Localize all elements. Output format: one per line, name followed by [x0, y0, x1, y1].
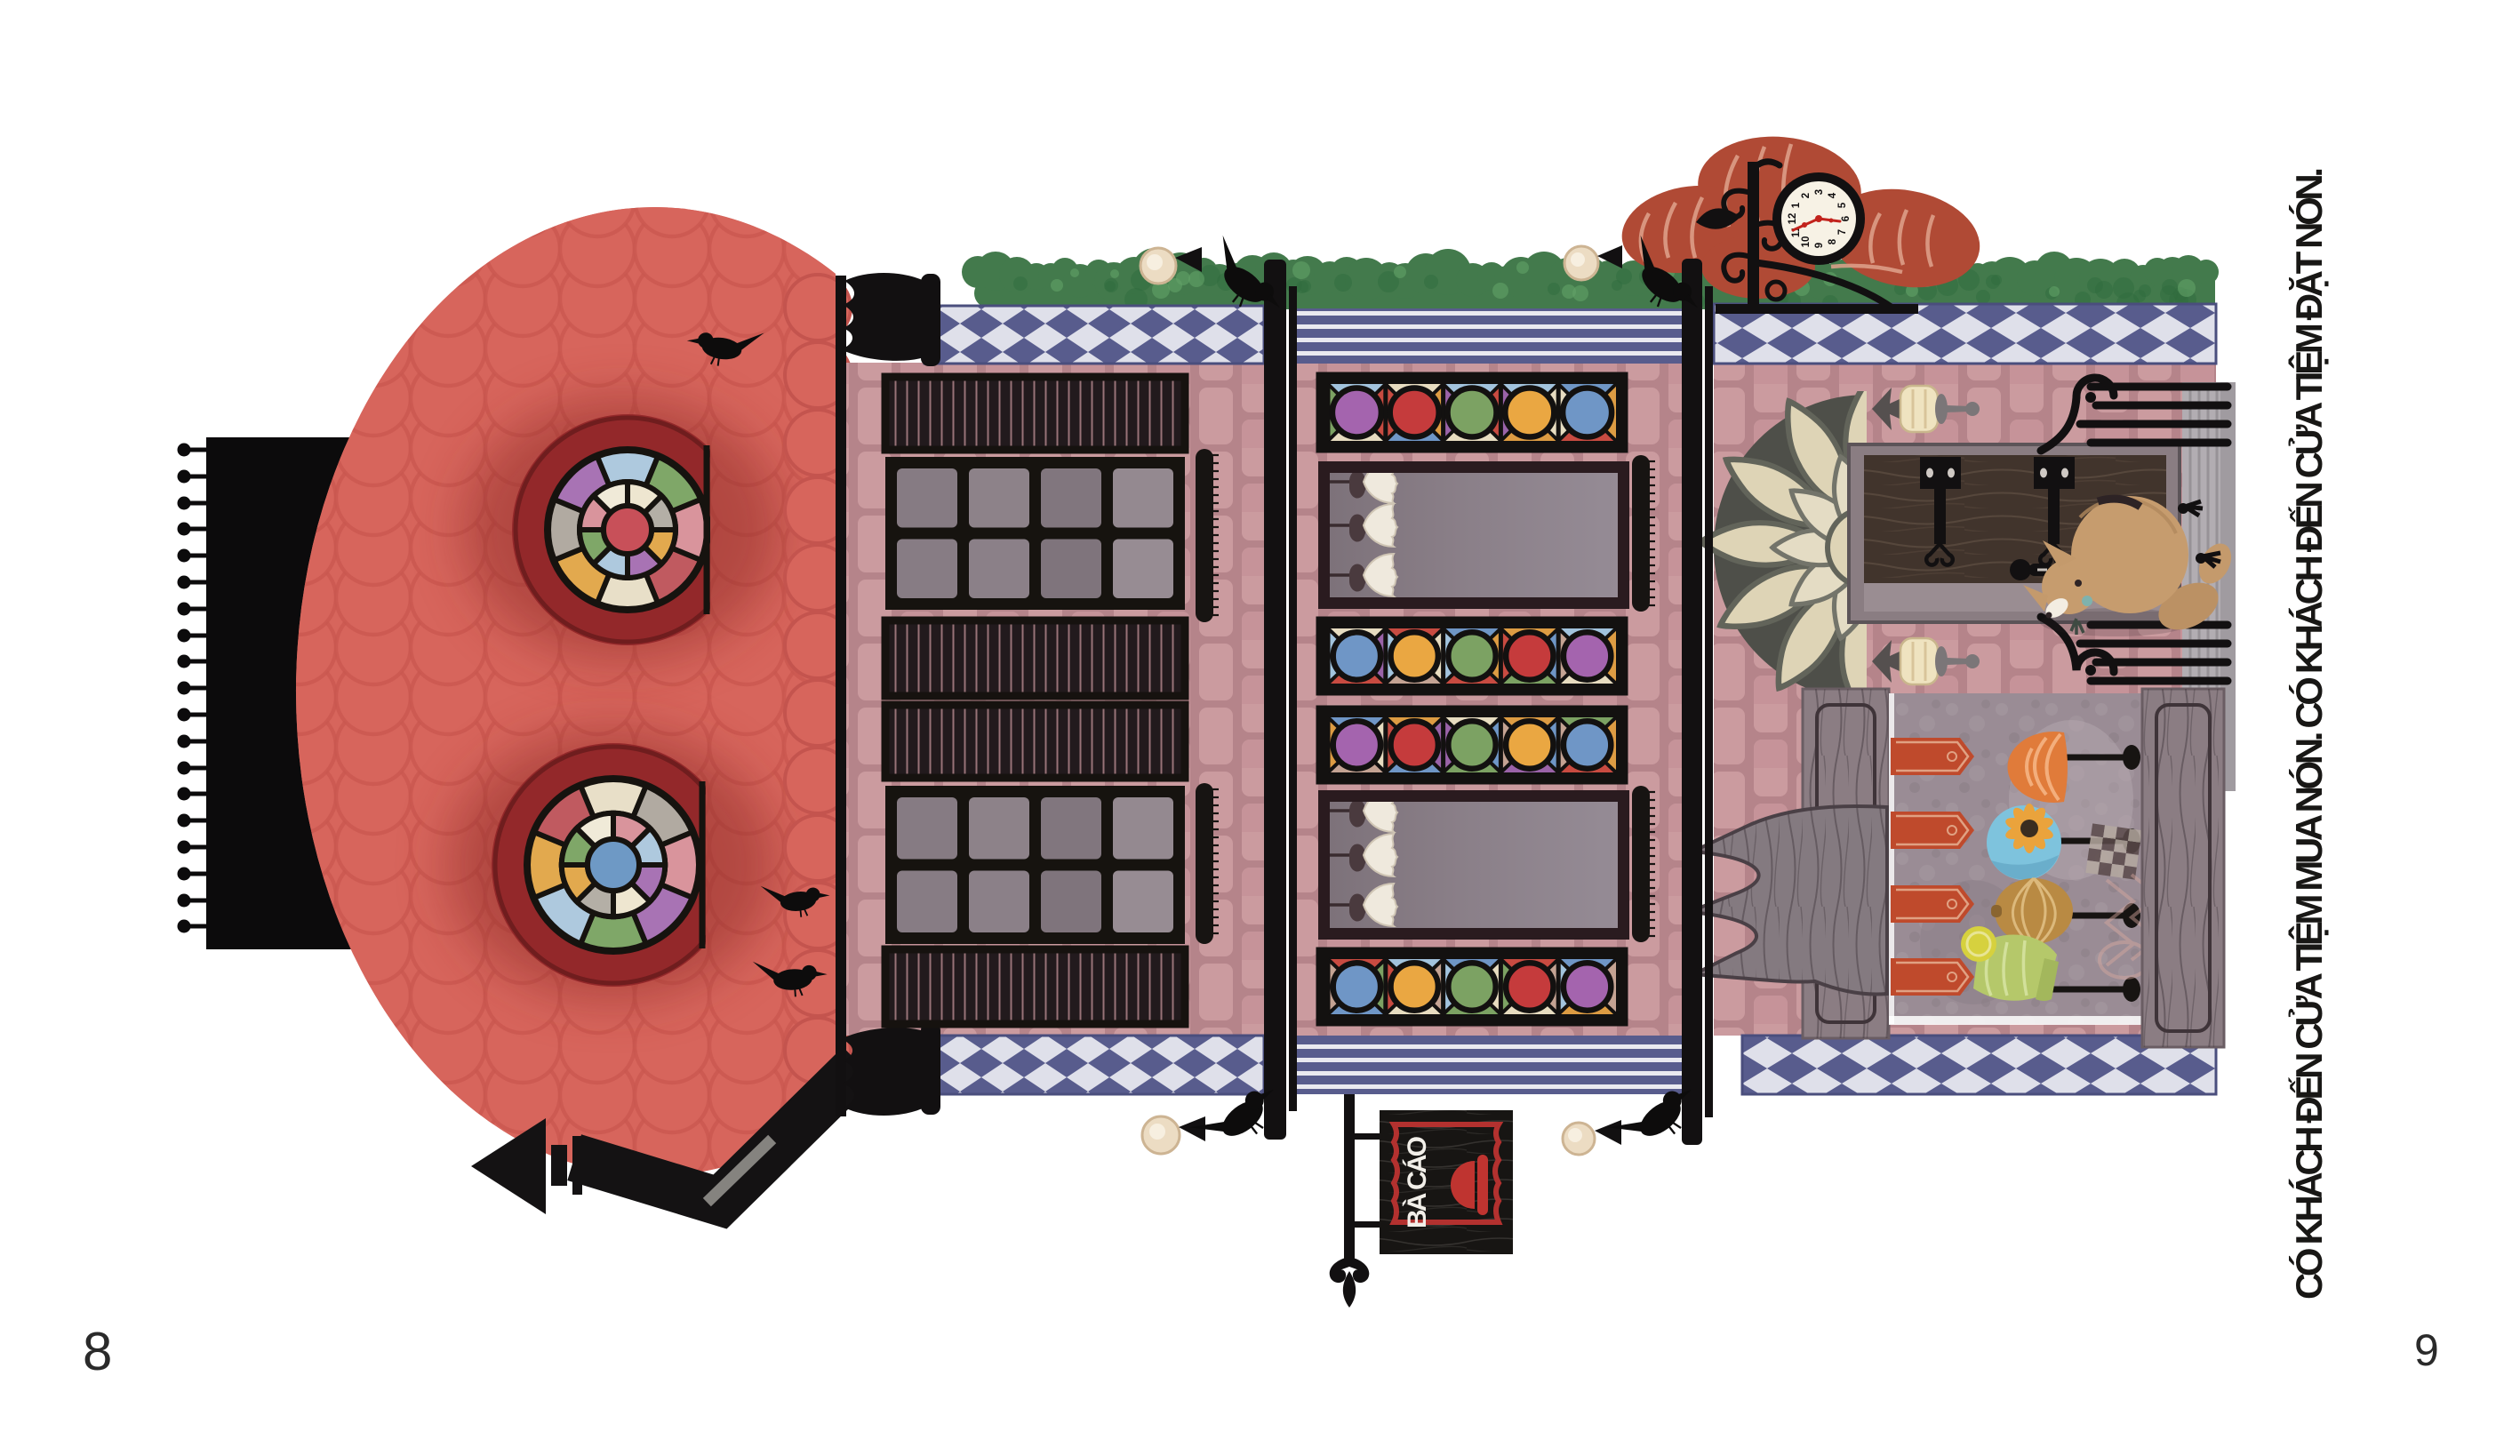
svg-text:BÀ CÁO: BÀ CÁO — [1402, 1136, 1432, 1228]
svg-text:1: 1 — [1791, 202, 1802, 208]
svg-text:8: 8 — [1828, 238, 1838, 244]
svg-text:12: 12 — [1788, 213, 1798, 225]
svg-text:CÓ KHÁCH ĐẾN CỬA TIỆM MUA NÓN.: CÓ KHÁCH ĐẾN CỬA TIỆM MUA NÓN. CÓ KHÁCH … — [2287, 167, 2330, 1300]
svg-text:10: 10 — [1801, 236, 1812, 248]
svg-text:8: 8 — [83, 1322, 112, 1381]
svg-text:3: 3 — [1814, 189, 1825, 195]
svg-text:7: 7 — [1837, 229, 1848, 235]
svg-text:6: 6 — [1841, 216, 1852, 221]
svg-text:9: 9 — [1814, 243, 1825, 248]
svg-text:2: 2 — [1801, 193, 1812, 198]
svg-text:9: 9 — [2414, 1325, 2439, 1375]
svg-text:4: 4 — [1828, 192, 1838, 198]
svg-text:5: 5 — [1837, 202, 1848, 208]
